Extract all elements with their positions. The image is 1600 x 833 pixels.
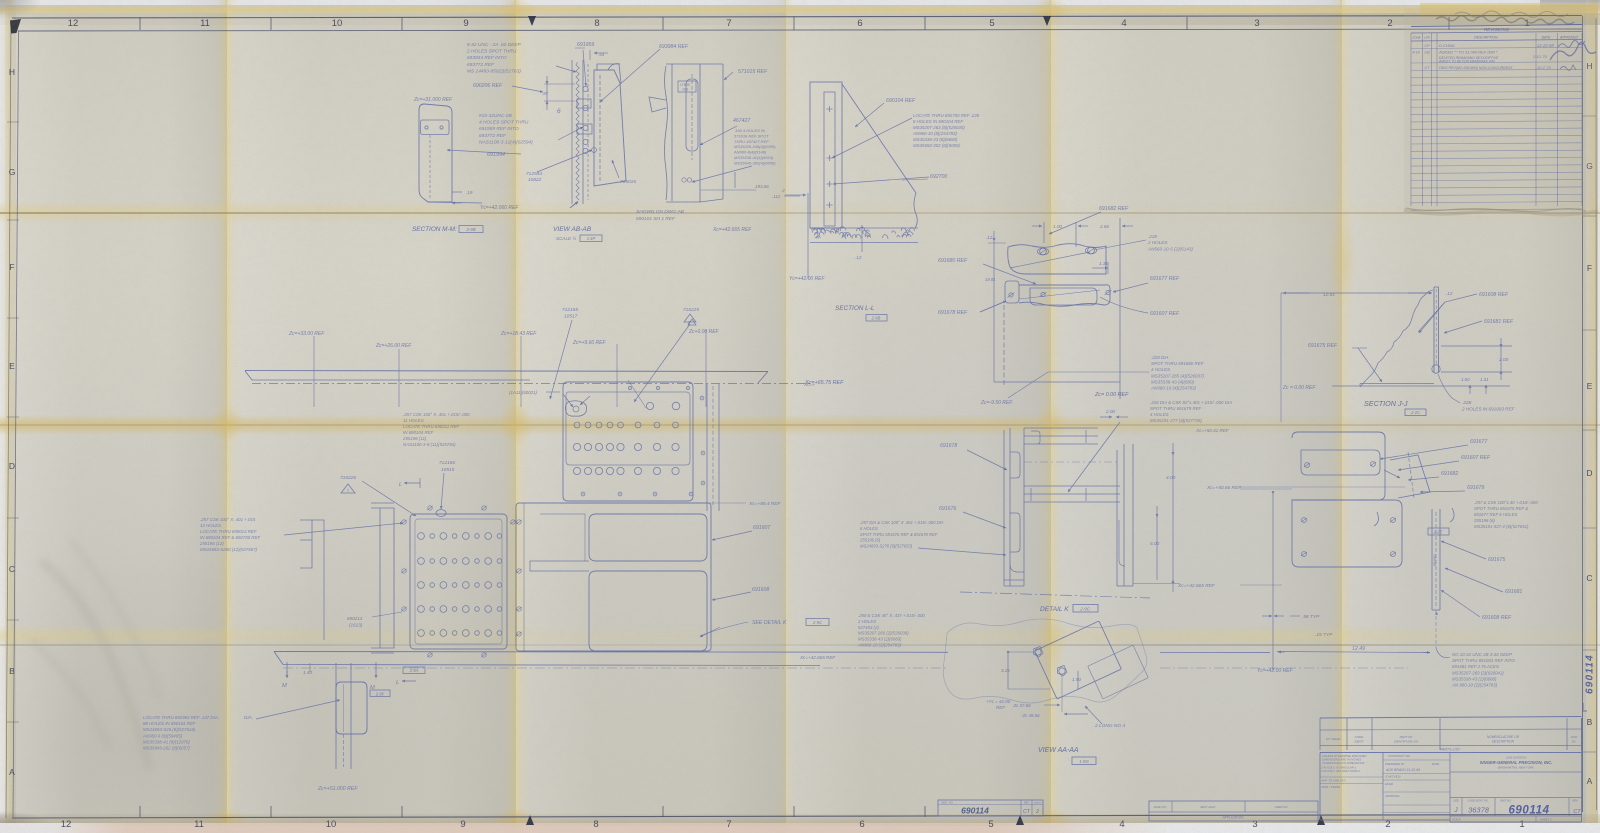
svg-text:FIND: FIND (1571, 735, 1577, 739)
svg-text:10515: 10515 (441, 467, 455, 473)
svg-text:715016: 715016 (620, 179, 636, 185)
svg-text:PART OF: PART OF (1400, 735, 1413, 739)
svg-text:691676: 691676 (939, 506, 956, 512)
svg-text:6: 6 (557, 108, 561, 115)
svg-text:1.31: 1.31 (1480, 377, 1489, 382)
svg-text:PARTS LIST: PARTS LIST (1440, 748, 1461, 752)
svg-text:DWG REV(NO-SHOWN) NON-CONCURRE: DWG REV(NO-SHOWN) NON-CONCURRENT. (1439, 66, 1514, 70)
svg-text:.250 & CSK 45° X .437 +.015/-.: .250 & CSK 45° X .437 +.015/-.0002 HOLES… (857, 613, 925, 648)
svg-text:A: A (1587, 776, 1593, 786)
svg-text:690114: 690114 (961, 806, 989, 816)
svg-text:(1A11)(60021): (1A11)(60021) (509, 390, 538, 395)
svg-text:2-9C: 2-9C (1079, 607, 1090, 612)
svg-text:CB: CB (1424, 51, 1430, 55)
svg-text:692700: 692700 (930, 174, 947, 180)
svg-text:D.CHNG: D.CHNG (1439, 43, 1455, 48)
svg-text:SINGER-GENERAL PRECISION, INC.: SINGER-GENERAL PRECISION, INC. (1480, 760, 1553, 765)
svg-text:1: 1 (1519, 819, 1524, 830)
svg-text:691682: 691682 (1441, 471, 1458, 477)
svg-text:716226: 716226 (340, 475, 356, 481)
svg-text:G: G (9, 167, 16, 177)
svg-text:Zc=+31.000 REF: Zc=+31.000 REF (413, 97, 453, 103)
svg-text:10: 10 (332, 18, 343, 29)
svg-text:712186: 712186 (439, 460, 455, 466)
svg-text:2-9A: 2-9A (409, 668, 419, 673)
svg-text:REV: REV (1572, 799, 1578, 803)
svg-text:CT: CT (1424, 66, 1430, 70)
svg-text:.19: .19 (466, 190, 473, 195)
svg-text:1-9G: 1-9G (1079, 759, 1089, 764)
svg-text:4: 4 (1121, 18, 1126, 29)
svg-text:L: L (399, 482, 402, 488)
svg-text:CP: CP (1424, 44, 1430, 48)
svg-text:12-22-69: 12-22-69 (1537, 43, 1554, 48)
svg-text:LTR: LTR (1424, 36, 1430, 40)
svg-text:#10-32UNC-2B4 HOLES SPOT THRU: #10-32UNC-2B4 HOLES SPOT THRU691959 REF … (479, 113, 533, 145)
svg-text:12.49: 12.49 (1352, 646, 1365, 652)
svg-text:690114: 690114 (1585, 654, 1596, 694)
svg-text:CODE IDENT NO.: CODE IDENT NO. (1467, 799, 1489, 803)
svg-text:APPROVED: APPROVED (1559, 36, 1578, 40)
svg-text:DWG. NO.: DWG. NO. (941, 801, 954, 805)
svg-text:REVISIONS: REVISIONS (1484, 27, 1510, 32)
svg-text:2: 2 (687, 320, 691, 325)
svg-text:+Yc = 42.00: +Yc = 42.00 (986, 699, 1011, 704)
svg-text:.15 TYP: .15 TYP (1315, 632, 1333, 638)
svg-text:E: E (9, 361, 15, 371)
svg-text:CONTRACT NO: CONTRACT NO (1388, 754, 1411, 758)
svg-text:691681: 691681 (1505, 589, 1522, 595)
svg-text:2: 2 (346, 489, 349, 493)
svg-text:Zc=+9.60 REF: Zc=+9.60 REF (572, 340, 606, 346)
svg-text:Xc=+: Xc=+ (803, 382, 815, 388)
svg-text:1.31: 1.31 (1099, 261, 1108, 266)
svg-text:NO.: NO. (1572, 740, 1577, 744)
svg-text:2.00: 2.00 (1105, 409, 1115, 414)
svg-text:2-9B: 2-9B (871, 316, 881, 321)
svg-text:716225: 716225 (683, 307, 699, 313)
svg-text:691678 REF: 691678 REF (938, 310, 968, 316)
svg-text:Zc= 0.00 REF: Zc= 0.00 REF (1094, 392, 1129, 398)
svg-text:REF: REF (996, 705, 1005, 710)
svg-text:18.81: 18.81 (985, 277, 995, 282)
svg-text:5: 5 (989, 18, 994, 29)
svg-text:Xc=+85.4 REF: Xc=+85.4 REF (748, 501, 782, 507)
svg-text:10517: 10517 (564, 314, 578, 320)
svg-text:691682 REF: 691682 REF (1099, 206, 1129, 212)
svg-text:SIZE: SIZE (1453, 799, 1459, 803)
svg-text:UNLESS OTHERWISE SPECIFIEDDIME: UNLESS OTHERWISE SPECIFIEDDIMENSIONS ARE… (1322, 754, 1366, 765)
svg-text:Zc=+26.00 REF: Zc=+26.00 REF (375, 343, 412, 349)
svg-text:SHEET 2: SHEET 2 (1540, 818, 1552, 822)
svg-text:7: 7 (726, 819, 731, 830)
svg-text:19 9: 19 9 (682, 88, 688, 92)
svg-text:4: 4 (1119, 819, 1124, 830)
svg-text:USED ON: USED ON (1275, 805, 1289, 809)
svg-text:Zc=+18.43 REF: Zc=+18.43 REF (500, 331, 537, 337)
svg-text:691608 REF: 691608 REF (1482, 615, 1512, 621)
svg-text:8: 8 (593, 819, 598, 830)
svg-text:A 10: A 10 (1412, 51, 1420, 55)
svg-text:(CHECKED): (CHECKED) (1385, 775, 1401, 779)
svg-text:DATE: DATE (1432, 762, 1439, 766)
svg-text:CT: CT (1573, 809, 1581, 815)
svg-text:DETAIL K: DETAIL K (1040, 606, 1069, 613)
svg-text:ADDED ’*’ TO 31.000 REF DIM: ADDED ’*’ TO 31.000 REF DIM * (1438, 50, 1498, 55)
svg-text:2 HOLES IN 691003 REF: 2 HOLES IN 691003 REF (1461, 407, 1516, 412)
svg-text:691677 REF: 691677 REF (1150, 276, 1180, 282)
svg-text:NEXT ASSY: NEXT ASSY (1200, 805, 1217, 809)
svg-text:C: C (9, 564, 15, 574)
svg-text:1:4P: 1:4P (587, 236, 596, 241)
svg-text:1.00: 1.00 (1461, 377, 1470, 382)
svg-text:690114: 690114 (1508, 805, 1549, 817)
svg-text:DESCRIPTION: DESCRIPTION (1492, 740, 1514, 744)
svg-text:Xc=+50.66 REF: Xc=+50.66 REF (1206, 485, 1242, 491)
svg-text:691994: 691994 (487, 152, 505, 158)
svg-text:CODE: CODE (1355, 735, 1365, 739)
svg-text:36378: 36378 (1468, 806, 1490, 815)
svg-text:SECTION L-L: SECTION L-L (835, 305, 875, 312)
svg-text:2.66: 2.66 (1099, 224, 1109, 229)
svg-text:DATE: DATE (1542, 36, 1552, 40)
svg-text:8-32 UNC - 2A .60 DEEP2 HOLES: 8-32 UNC - 2A .60 DEEP2 HOLES SPOT THRU6… (466, 42, 521, 74)
svg-text:DASH NO: DASH NO (1154, 805, 1168, 809)
svg-text:-Zc 36.56: -Zc 36.56 (1021, 713, 1040, 718)
svg-text:Zc+0.00 REF: Zc+0.00 REF (688, 329, 720, 335)
svg-text:10-7-70: 10-7-70 (1537, 65, 1552, 70)
svg-text:2-9C: 2-9C (812, 620, 823, 625)
svg-text:6: 6 (859, 819, 864, 830)
svg-text:2-12-70: 2-12-70 (1532, 54, 1548, 59)
svg-text:NOMENCLATURE OR: NOMENCLATURE OR (1487, 735, 1520, 739)
svg-text:DWG NO.: DWG NO. (1500, 799, 1512, 803)
svg-text:12: 12 (61, 819, 72, 830)
svg-text:.257 CSK 100° X .401 +.01512 H: .257 CSK 100° X .401 +.01512 HOLESLOCATE… (199, 517, 261, 552)
svg-text:.228 DIASPOT THRU 691680 RE: .228 DIASPOT THRU 691680 REF4 HOLESMS352… (1150, 355, 1205, 391)
svg-text:9: 9 (460, 819, 465, 830)
svg-text:(1613): (1613) (349, 623, 363, 628)
svg-text:11: 11 (194, 819, 204, 830)
svg-text:AGK BRAVO 11-22-66: AGK BRAVO 11-22-66 (1385, 768, 1420, 772)
svg-text:A: A (9, 767, 15, 777)
svg-text:2: 2 (1387, 18, 1392, 29)
svg-text:712185: 712185 (562, 307, 578, 313)
svg-text:.112: .112 (772, 194, 781, 199)
svg-text:690104 REF: 690104 REF (886, 98, 916, 104)
svg-text:6.00: 6.00 (1150, 541, 1160, 547)
svg-text:L: L (396, 680, 399, 686)
svg-text:.228: .228 (1462, 400, 1472, 406)
svg-text:1.00: 1.00 (1053, 224, 1062, 229)
svg-text:APPROVAL: APPROVAL (1384, 794, 1400, 798)
svg-text:Xc=+42.665 REF: Xc=+42.665 REF (1177, 583, 1216, 589)
svg-text:APPLICATION: APPLICATION (1222, 816, 1245, 820)
svg-text:J: J (1453, 807, 1458, 814)
svg-text:.12: .12 (986, 235, 993, 240)
svg-text:3: 3 (1254, 18, 1259, 29)
svg-text:2-2E: 2-2E (1433, 530, 1443, 535)
svg-text:VIEW AA-AA: VIEW AA-AA (1038, 747, 1079, 754)
svg-text:5: 5 (988, 819, 993, 830)
svg-text:12.81: 12.81 (1323, 292, 1335, 298)
svg-text:Yc=+42.00 REF: Yc=+42.00 REF (789, 276, 826, 282)
svg-text:DIA.: DIA. (244, 715, 253, 720)
svg-text:DESCRIPTION: DESCRIPTION (1474, 36, 1498, 40)
svg-text:10822: 10822 (528, 177, 542, 183)
svg-text:ANNOT. TO RE FOR MANDRAKE DI: ANNOT. TO RE FOR MANDRAKE DIM (1438, 60, 1495, 64)
svg-text:690206 REF: 690206 REF (473, 83, 503, 89)
svg-text:693984 REF: 693984 REF (659, 44, 689, 50)
svg-text:Yc=+42.00 REF: Yc=+42.00 REF (1257, 668, 1294, 674)
svg-text:691608 REF: 691608 REF (1479, 292, 1509, 298)
svg-text:.199 4 HOLES IN571018 REF S: .199 4 HOLES IN571018 REF SPOTTHRU 46742… (733, 128, 776, 165)
svg-text:712584: 712584 (526, 171, 542, 177)
svg-text:Xc=+42.665 REF: Xc=+42.665 REF (712, 227, 752, 233)
svg-text:.12: .12 (1446, 291, 1453, 296)
svg-text:467427: 467427 (733, 118, 751, 124)
svg-text:2-9B: 2-9B (465, 227, 475, 232)
svg-text:2: 2 (1385, 819, 1390, 830)
svg-text:M: M (282, 683, 287, 689)
svg-text:Xc=+50.41 REF: Xc=+50.41 REF (1195, 428, 1230, 433)
svg-text:H: H (9, 67, 15, 77)
svg-text:691959: 691959 (577, 42, 594, 48)
svg-text:6: 6 (857, 18, 862, 29)
svg-text:REV: REV (1024, 802, 1029, 805)
svg-text:SECTION M-M:: SECTION M-M: (412, 226, 457, 233)
svg-text:ENGR: ENGR (1385, 782, 1393, 786)
svg-text:ZONE: ZONE (1411, 36, 1421, 40)
svg-text:2-9F: 2-9F (375, 692, 385, 697)
svg-text:9: 9 (463, 18, 468, 29)
svg-text:SEE DETAIL K: SEE DETAIL K (752, 620, 787, 626)
svg-text:NO 10-32 UNC-2B X.62 DEEPSPOT: NO 10-32 UNC-2B X.62 DEEPSPOT THRU 69100… (1451, 652, 1515, 688)
svg-text:1.90: 1.90 (1072, 677, 1081, 682)
svg-text:691608: 691608 (752, 587, 769, 593)
svg-text:Zc = 0.00 REF: Zc = 0.00 REF (1282, 385, 1316, 391)
svg-text:APP. TO LINK STD: APP. TO LINK STD (1321, 779, 1346, 783)
svg-text:8: 8 (594, 18, 599, 29)
svg-text:Zc=+33.00 REF: Zc=+33.00 REF (288, 331, 325, 337)
svg-text:.257 CSK 100° X .401 +.015/-.: .257 CSK 100° X .401 +.015/-.00011 HOLES… (402, 412, 470, 447)
svg-text:CT: CT (1023, 809, 1031, 815)
svg-text:691607: 691607 (753, 525, 771, 531)
svg-text:571015 REF: 571015 REF (738, 69, 768, 75)
svg-text:2 PLACE ± .03 ANGULAR ±3 PLA: 2 PLACE ± .03 ANGULAR ±3 PLACE ± .010 FR… (1320, 766, 1361, 774)
svg-text:SCALE: SCALE (1452, 818, 1461, 822)
svg-text:VIEW AB-AB: VIEW AB-AB (553, 226, 592, 233)
svg-text:691678: 691678 (940, 443, 957, 449)
svg-text:SHEET: SHEET (1034, 803, 1042, 805)
svg-text:4.00: 4.00 (1166, 475, 1176, 481)
svg-text:12: 12 (68, 18, 79, 29)
svg-text:3.26: 3.26 (1001, 668, 1010, 673)
svg-text:2-2C: 2-2C (1410, 410, 1421, 415)
svg-text:.257 & CSK 100°x.40 +.016/-.00: .257 & CSK 100°x.40 +.016/-.000SPOT THRU… (1473, 500, 1538, 529)
svg-text:LINK DIVISION: LINK DIVISION (1506, 756, 1528, 760)
svg-text:691681 REF: 691681 REF (1484, 319, 1514, 325)
svg-text:11: 11 (200, 18, 210, 29)
svg-text:.257 DIA & CSK 100° X .401 +.0: .257 DIA & CSK 100° X .401 +.015/-.000 D… (859, 520, 944, 549)
svg-text:-2: -2 (781, 188, 785, 193)
svg-text:D: D (1586, 468, 1592, 478)
svg-text:LTB40: LTB40 (680, 83, 690, 87)
svg-text:691607 REF: 691607 REF (1461, 455, 1491, 461)
svg-text:B: B (9, 666, 15, 676)
svg-text:2: 2 (1035, 809, 1039, 815)
svg-text:1.44: 1.44 (303, 670, 312, 675)
svg-text:BINGHAMTON, NEW YORK: BINGHAMTON, NEW YORK (1498, 766, 1534, 770)
svg-text:LOCATE THRU 691994 REF .147: LOCATE THRU 691994 REF .147 DIA.88 HOLES… (142, 715, 219, 751)
svg-text:B: B (1587, 717, 1593, 727)
svg-text:.193.06: .193.06 (754, 184, 769, 189)
svg-text:IDENT: IDENT (1355, 740, 1365, 744)
svg-text:.12: .12 (855, 255, 862, 260)
svg-text:SCALE ½: SCALE ½ (556, 235, 576, 241)
svg-text:10: 10 (326, 819, 337, 830)
svg-text:.228 DIA & CSK 82°x.401 +.015: .228 DIA & CSK 82°x.401 +.015/-.000 DIAS… (1150, 400, 1232, 423)
svg-text:691680 REF: 691680 REF (938, 258, 968, 264)
svg-text:691677: 691677 (1470, 439, 1488, 445)
svg-text:-Zc 37.66: -Zc 37.66 (1012, 703, 1031, 708)
svg-text:2.00: 2.00 (1498, 357, 1509, 363)
svg-text:691679: 691679 (1467, 485, 1484, 491)
svg-text:QTY REQD: QTY REQD (1326, 737, 1341, 741)
svg-text:IDENTIFYING NO: IDENTIFYING NO (1394, 740, 1419, 744)
svg-text:691607 REF: 691607 REF (1150, 311, 1180, 317)
svg-text:Zc=-9.50 REF: Zc=-9.50 REF (980, 400, 1013, 406)
svg-text:691675: 691675 (1488, 557, 1505, 563)
svg-text:F: F (9, 262, 14, 272)
svg-text:690101 SH 1 REF: 690101 SH 1 REF (636, 216, 676, 222)
svg-text:Yc=+42.060 REF: Yc=+42.060 REF (480, 205, 519, 211)
svg-text:PREPARED BY: PREPARED BY (1385, 762, 1406, 766)
svg-text:F: F (1587, 263, 1592, 273)
svg-text:D: D (9, 461, 15, 471)
svg-text:SHOWN ON DWG-AB: SHOWN ON DWG-AB (636, 209, 685, 215)
svg-text:MATL / FINISH: MATL / FINISH (1322, 785, 1342, 789)
svg-text:.2282 HOLESAN560-10-5 (2)(614: .2282 HOLESAN560-10-5 (2)(6143) (1147, 234, 1193, 251)
svg-text:7: 7 (726, 18, 731, 29)
svg-text:691681: 691681 (1433, 554, 1437, 566)
svg-text:690213: 690213 (347, 616, 363, 621)
svg-text:691675 REF: 691675 REF (1308, 343, 1338, 349)
svg-text:SECTION J-J: SECTION J-J (1364, 399, 1408, 408)
svg-text:Zc=+51.000 REF: Zc=+51.000 REF (317, 786, 358, 792)
svg-text:LOCATE THRU 692700 REF .2288: LOCATE THRU 692700 REF .2288 HOLES IN 69… (912, 113, 980, 148)
svg-text:2 LONG NO 4: 2 LONG NO 4 (1094, 723, 1125, 729)
svg-text:.98 TYP: .98 TYP (1302, 614, 1320, 620)
svg-text:Xc=+42.665 REF: Xc=+42.665 REF (799, 655, 836, 660)
svg-text:E: E (1587, 381, 1593, 391)
svg-text:C: C (1586, 573, 1592, 583)
